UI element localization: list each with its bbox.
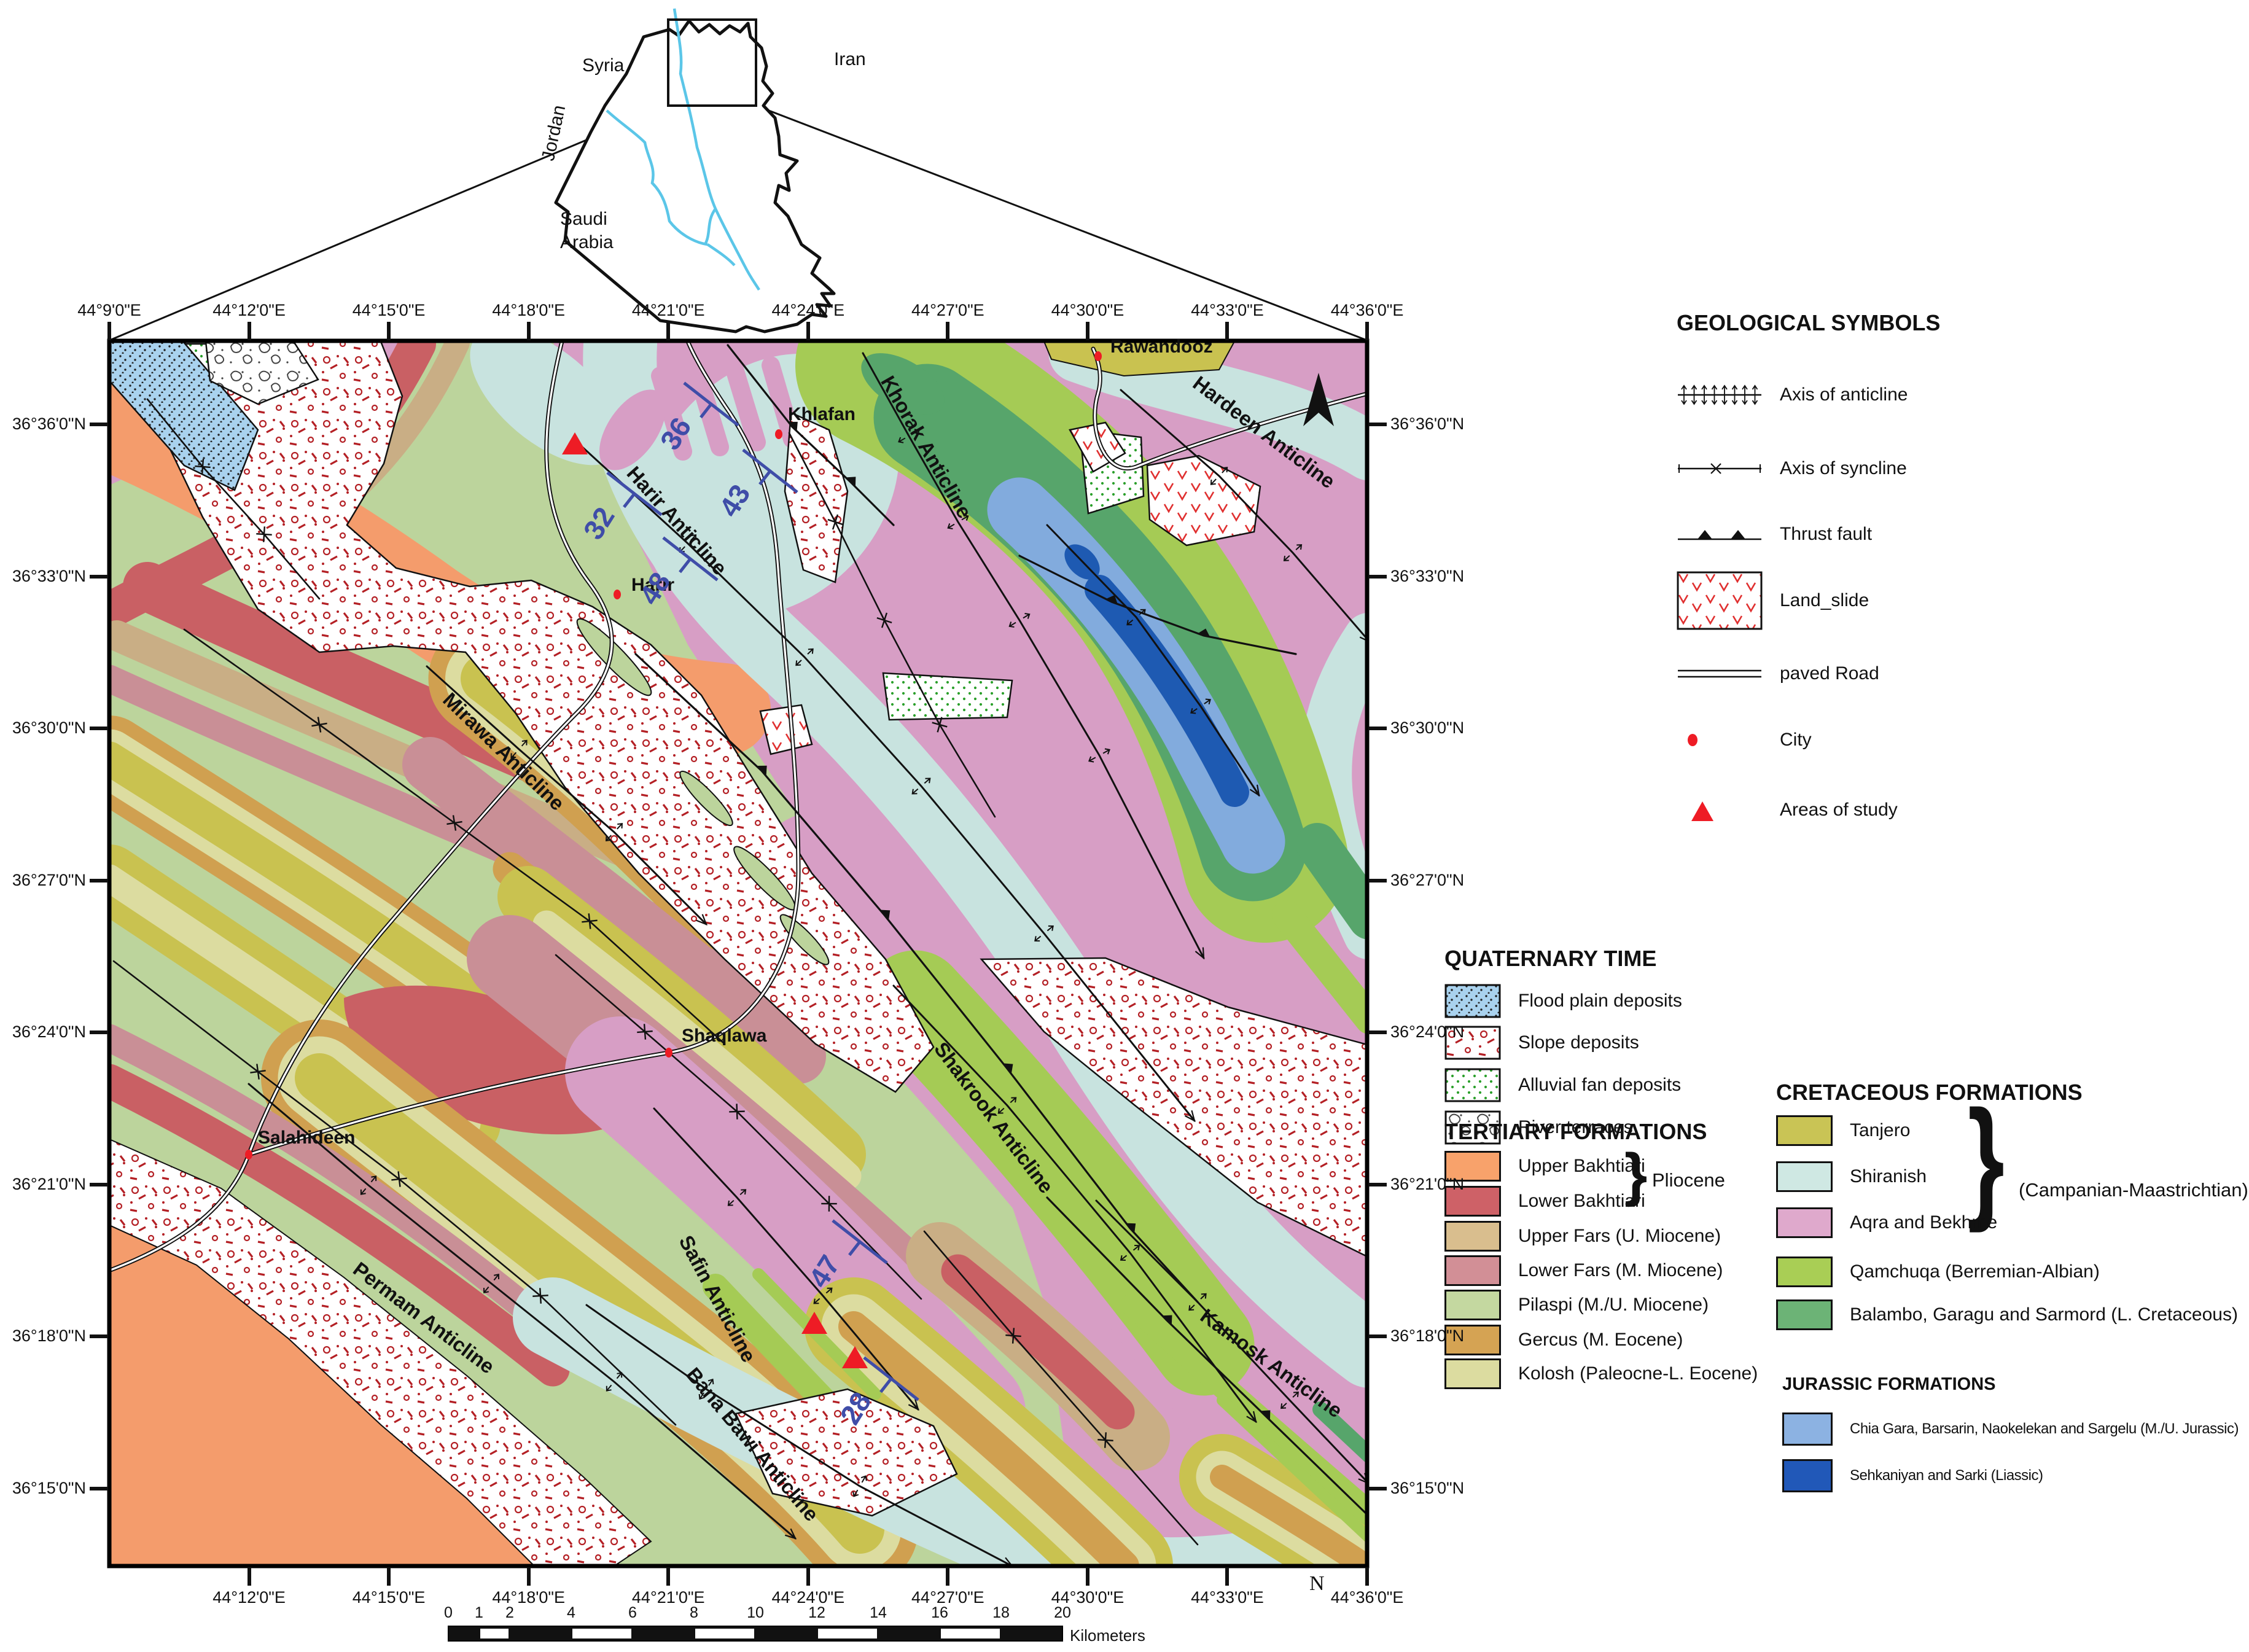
lon-tick-label-bottom: 44°15'0"E bbox=[333, 1588, 444, 1607]
study-area-triangle bbox=[562, 432, 588, 454]
scale-tick-label: 12 bbox=[798, 1604, 835, 1622]
lat-tick-right bbox=[1368, 1487, 1387, 1490]
tertiary-item-3-label: Lower Fars (M. Miocene) bbox=[1518, 1260, 1723, 1281]
lon-tick-label-top: 44°12'0"E bbox=[194, 301, 305, 320]
lat-tick-label-right: 36°15'0"N bbox=[1390, 1479, 1464, 1498]
jurassic-item-0: Chia Gara, Barsarin, Naokelekan and Sarg… bbox=[1782, 1412, 2239, 1446]
jurassic-item-1: Sehkaniyan and Sarki (Liassic) bbox=[1782, 1459, 2043, 1492]
lat-tick-right bbox=[1368, 1334, 1387, 1338]
scale-tick-label: 8 bbox=[676, 1604, 712, 1622]
quaternary-slope: Slope deposits bbox=[1444, 1026, 1639, 1060]
tertiary-item-0-label: Upper Bakhtiari bbox=[1518, 1156, 1645, 1177]
cretaceous-item-0: Tanjero bbox=[1776, 1115, 1910, 1146]
lat-tick-label-left: 36°15'0"N bbox=[0, 1479, 86, 1498]
tertiary-item-5: Gercus (M. Eocene) bbox=[1444, 1325, 1683, 1355]
lon-tick-label-top: 44°27'0"E bbox=[892, 301, 1003, 320]
country-label: Iran bbox=[834, 49, 866, 70]
lat-tick-label-left: 36°18'0"N bbox=[0, 1327, 86, 1346]
lat-tick-label-right: 36°30'0"N bbox=[1390, 719, 1464, 738]
lon-tick-bottom bbox=[806, 1567, 810, 1586]
lon-tick-bottom bbox=[527, 1567, 531, 1586]
legend-geological-symbols: GEOLOGICAL SYMBOLS Axis of anticlineAxis… bbox=[1677, 310, 2143, 851]
scale-tick-label: 16 bbox=[921, 1604, 958, 1622]
tertiary-item-2: Upper Fars (U. Miocene) bbox=[1444, 1221, 1721, 1252]
cretaceous-item-2: Aqra and Bekhme bbox=[1776, 1207, 1997, 1238]
scale-bar bbox=[448, 1626, 1062, 1641]
lon-tick-top bbox=[946, 322, 949, 340]
lat-tick-label-left: 36°24'0"N bbox=[0, 1023, 86, 1042]
lon-tick-label-top: 44°9'0"E bbox=[54, 301, 165, 320]
city-marker bbox=[665, 1048, 672, 1058]
campanian-brace: } bbox=[1968, 1097, 2005, 1218]
city-marker bbox=[1094, 351, 1102, 361]
lon-tick-bottom bbox=[1225, 1567, 1229, 1586]
lat-tick-label-right: 36°36'0"N bbox=[1390, 415, 1464, 434]
legend-quaternary-title: QUATERNARY TIME bbox=[1444, 946, 1656, 972]
symbol-syncline-icon bbox=[1677, 456, 1763, 481]
symbol-landslide: Land_slide bbox=[1677, 571, 1869, 630]
tertiary-item-1-label: Lower Bakhtiari bbox=[1518, 1191, 1645, 1212]
tertiary-item-6-label: Kolosh (Paleocne-L. Eocene) bbox=[1518, 1363, 1758, 1384]
tertiary-item-6: Kolosh (Paleocne-L. Eocene) bbox=[1444, 1358, 1758, 1389]
lon-tick-label-bottom: 44°36'0"E bbox=[1312, 1588, 1422, 1607]
tertiary-item-1: Lower Bakhtiari bbox=[1444, 1186, 1645, 1217]
lon-tick-top bbox=[1086, 322, 1089, 340]
symbol-anticline-label: Axis of anticline bbox=[1780, 384, 1908, 405]
tertiary-item-2-icon bbox=[1444, 1221, 1501, 1252]
cretaceous-item-2-icon bbox=[1776, 1207, 1833, 1238]
lat-tick-label-right: 36°18'0"N bbox=[1390, 1327, 1464, 1346]
cretaceous-item-0-icon bbox=[1776, 1115, 1833, 1146]
lat-tick-right bbox=[1368, 727, 1387, 730]
cretaceous-item-0-label: Tanjero bbox=[1850, 1120, 1910, 1141]
lat-tick-right bbox=[1368, 1183, 1387, 1186]
quaternary-alluvial: Alluvial fan deposits bbox=[1444, 1068, 1681, 1102]
lon-tick-top bbox=[1365, 322, 1369, 340]
city-marker bbox=[614, 590, 621, 599]
lon-tick-top bbox=[527, 322, 531, 340]
symbol-syncline-label: Axis of syncline bbox=[1780, 458, 1907, 479]
cretaceous-item-4-icon bbox=[1776, 1299, 1833, 1330]
quaternary-alluvial-label: Alluvial fan deposits bbox=[1518, 1075, 1681, 1096]
country-label: Saudi Arabia bbox=[560, 208, 640, 254]
legend-symbols-title: GEOLOGICAL SYMBOLS bbox=[1677, 310, 1940, 336]
tertiary-item-3: Lower Fars (M. Miocene) bbox=[1444, 1255, 1723, 1286]
symbol-road-label: paved Road bbox=[1780, 663, 1879, 684]
lon-tick-bottom bbox=[248, 1567, 251, 1586]
lat-tick-label-left: 36°21'0"N bbox=[0, 1175, 86, 1194]
lon-tick-label-top: 44°15'0"E bbox=[333, 301, 444, 320]
lat-tick-label-right: 36°33'0"N bbox=[1390, 567, 1464, 586]
cretaceous-item-1-label: Shiranish bbox=[1850, 1166, 1927, 1187]
scale-tick-label: 2 bbox=[491, 1604, 528, 1622]
lon-tick-top bbox=[666, 322, 670, 340]
lon-tick-top bbox=[107, 322, 111, 340]
symbol-city-icon bbox=[1677, 728, 1763, 752]
legend-tertiary-title: TERTIARY FORMATIONS bbox=[1444, 1119, 1707, 1145]
quaternary-alluvial-icon bbox=[1444, 1068, 1501, 1102]
symbol-study: Areas of study bbox=[1677, 795, 1898, 825]
jurassic-item-1-label: Sehkaniyan and Sarki (Liassic) bbox=[1850, 1467, 2043, 1484]
lon-tick-label-bottom: 44°12'0"E bbox=[194, 1588, 305, 1607]
study-area-triangle bbox=[842, 1346, 868, 1368]
cretaceous-item-4-label: Balambo, Garagu and Sarmord (L. Cretaceo… bbox=[1850, 1304, 2238, 1325]
tertiary-item-2-label: Upper Fars (U. Miocene) bbox=[1518, 1226, 1721, 1247]
lon-tick-top bbox=[1225, 322, 1229, 340]
lon-tick-bottom bbox=[1086, 1567, 1089, 1586]
symbol-landslide-label: Land_slide bbox=[1780, 590, 1869, 611]
symbol-thrust: Thrust fault bbox=[1677, 522, 1872, 547]
cretaceous-item-3: Qamchuqa (Berremian-Albian) bbox=[1776, 1257, 2100, 1287]
jurassic-item-0-icon bbox=[1782, 1412, 1833, 1446]
geological-map-figure: N Kilometers GEOLOGICAL SYMBOLS Axis of … bbox=[0, 0, 2249, 1652]
lat-tick-label-right: 36°21'0"N bbox=[1390, 1175, 1464, 1194]
lat-tick-left bbox=[90, 1031, 108, 1034]
scale-tick-label: 10 bbox=[737, 1604, 774, 1622]
lat-tick-label-left: 36°33'0"N bbox=[0, 567, 86, 586]
quaternary-flood-icon bbox=[1444, 984, 1501, 1018]
tertiary-item-3-icon bbox=[1444, 1255, 1501, 1286]
lon-tick-label-top: 44°24'0"E bbox=[753, 301, 863, 320]
symbol-road-icon bbox=[1677, 661, 1763, 686]
symbol-study-label: Areas of study bbox=[1780, 800, 1898, 820]
city-label: Salahideen bbox=[258, 1128, 355, 1148]
cretaceous-item-3-label: Qamchuqa (Berremian-Albian) bbox=[1850, 1261, 2100, 1282]
symbol-anticline: Axis of anticline bbox=[1677, 383, 1908, 407]
scale-tick-label: 18 bbox=[983, 1604, 1019, 1622]
tertiary-item-4-label: Pilaspi (M./U. Miocene) bbox=[1518, 1295, 1709, 1315]
cretaceous-item-2-label: Aqra and Bekhme bbox=[1850, 1212, 1997, 1233]
scale-tick-label: 20 bbox=[1044, 1604, 1081, 1622]
lon-tick-bottom bbox=[666, 1567, 670, 1586]
legend-jurassic: JURASSIC FORMATIONS Chia Gara, Barsarin,… bbox=[1782, 1374, 2249, 1510]
quaternary-flood: Flood plain deposits bbox=[1444, 984, 1682, 1018]
lon-tick-label-top: 44°30'0"E bbox=[1032, 301, 1143, 320]
scale-unit-label: Kilometers bbox=[1070, 1626, 1145, 1645]
lon-tick-bottom bbox=[946, 1567, 949, 1586]
symbol-thrust-icon bbox=[1677, 522, 1763, 547]
lon-tick-label-top: 44°21'0"E bbox=[613, 301, 723, 320]
pliocene-label: Pliocene bbox=[1652, 1169, 1725, 1191]
lat-tick-right bbox=[1368, 423, 1387, 426]
city-marker bbox=[775, 429, 782, 439]
legend-tertiary: TERTIARY FORMATIONS } Pliocene Upper Bak… bbox=[1444, 1119, 1788, 1408]
lat-tick-label-left: 36°36'0"N bbox=[0, 415, 86, 434]
lat-tick-label-right: 36°27'0"N bbox=[1390, 871, 1464, 890]
city-marker bbox=[245, 1150, 252, 1159]
lat-tick-right bbox=[1368, 1031, 1387, 1034]
lat-tick-left bbox=[90, 727, 108, 730]
symbol-syncline: Axis of syncline bbox=[1677, 456, 1907, 481]
cretaceous-item-4: Balambo, Garagu and Sarmord (L. Cretaceo… bbox=[1776, 1299, 2238, 1330]
quaternary-flood-label: Flood plain deposits bbox=[1518, 991, 1682, 1011]
lon-tick-label-top: 44°36'0"E bbox=[1312, 301, 1422, 320]
symbol-city: City bbox=[1677, 728, 1812, 752]
lat-tick-left bbox=[90, 575, 108, 579]
jurassic-item-0-label: Chia Gara, Barsarin, Naokelekan and Sarg… bbox=[1850, 1420, 2239, 1438]
tertiary-item-0: Upper Bakhtiari bbox=[1444, 1151, 1645, 1182]
lat-tick-left bbox=[90, 1183, 108, 1186]
legend-cretaceous-title: CRETACEOUS FORMATIONS bbox=[1776, 1080, 2083, 1105]
study-area-triangle bbox=[801, 1312, 827, 1334]
scale-tick-label: 4 bbox=[553, 1604, 590, 1622]
city-label: Khlafan bbox=[788, 404, 856, 425]
symbol-anticline-icon bbox=[1677, 383, 1763, 407]
symbol-road: paved Road bbox=[1677, 661, 1879, 686]
tertiary-item-5-label: Gercus (M. Eocene) bbox=[1518, 1330, 1683, 1350]
lat-tick-left bbox=[90, 423, 108, 426]
lat-tick-label-right: 36°24'0"N bbox=[1390, 1023, 1464, 1042]
lat-tick-label-left: 36°30'0"N bbox=[0, 719, 86, 738]
scale-tick-label: 6 bbox=[614, 1604, 651, 1622]
lat-tick-left bbox=[90, 1487, 108, 1490]
lon-tick-bottom bbox=[1365, 1567, 1369, 1586]
city-label: Shaqlawa bbox=[682, 1026, 766, 1046]
city-label: Rawandooz bbox=[1110, 337, 1213, 357]
lat-tick-right bbox=[1368, 879, 1387, 882]
tertiary-item-4: Pilaspi (M./U. Miocene) bbox=[1444, 1290, 1709, 1320]
symbol-study-icon bbox=[1677, 795, 1763, 825]
legend-jurassic-title: JURASSIC FORMATIONS bbox=[1782, 1374, 1995, 1395]
lon-tick-label-top: 44°18'0"E bbox=[474, 301, 584, 320]
lon-tick-bottom bbox=[387, 1567, 391, 1586]
campanian-label: (Campanian-Maastrichtian) bbox=[2019, 1179, 2248, 1201]
lat-tick-left bbox=[90, 1334, 108, 1338]
lat-tick-label-left: 36°27'0"N bbox=[0, 871, 86, 890]
cretaceous-item-3-icon bbox=[1776, 1257, 1833, 1287]
lon-tick-label-bottom: 44°33'0"E bbox=[1172, 1588, 1282, 1607]
lon-tick-top bbox=[806, 322, 810, 340]
lon-tick-top bbox=[387, 322, 391, 340]
cretaceous-item-1: Shiranish bbox=[1776, 1161, 1927, 1192]
scale-tick-label: 14 bbox=[860, 1604, 897, 1622]
quaternary-slope-label: Slope deposits bbox=[1518, 1032, 1639, 1053]
tertiary-item-6-icon bbox=[1444, 1358, 1501, 1389]
symbol-city-label: City bbox=[1780, 730, 1812, 750]
lon-tick-top bbox=[248, 322, 251, 340]
country-label: Syria bbox=[582, 55, 624, 76]
lat-tick-left bbox=[90, 879, 108, 882]
lat-tick-right bbox=[1368, 575, 1387, 579]
locator-map bbox=[111, 9, 1365, 340]
symbol-landslide-icon bbox=[1677, 571, 1763, 630]
cretaceous-item-1-icon bbox=[1776, 1161, 1833, 1192]
symbol-thrust-label: Thrust fault bbox=[1780, 524, 1872, 545]
lon-tick-label-top: 44°33'0"E bbox=[1172, 301, 1282, 320]
tertiary-item-4-icon bbox=[1444, 1290, 1501, 1320]
jurassic-item-1-icon bbox=[1782, 1459, 1833, 1492]
legend-cretaceous: CRETACEOUS FORMATIONS } (Campanian-Maast… bbox=[1776, 1080, 2249, 1374]
